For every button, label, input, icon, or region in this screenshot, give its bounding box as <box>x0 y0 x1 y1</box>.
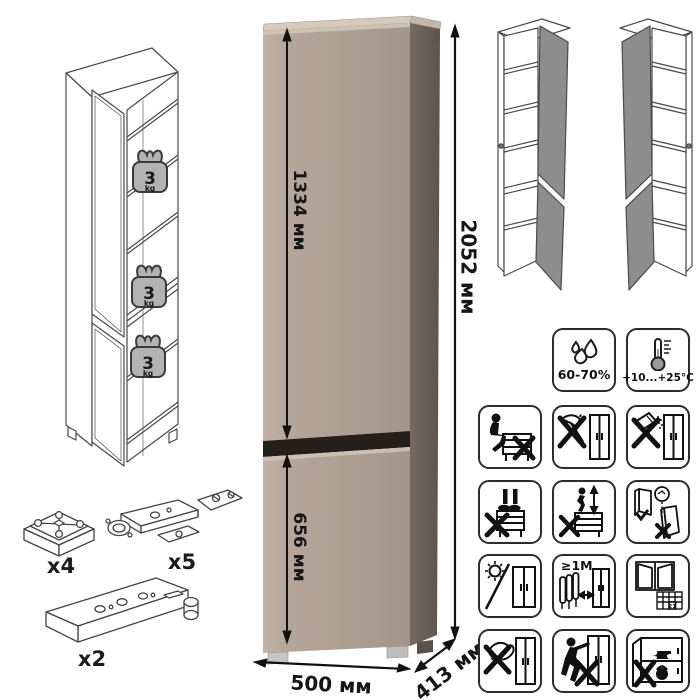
lower-door-open <box>92 323 124 466</box>
icon-no-overloading <box>626 629 690 693</box>
furniture-spec-diagram: { "cabinet": { "upper_door_height": "133… <box>0 0 700 700</box>
cabinet-left-side <box>66 73 92 446</box>
plinth-rail-drawing <box>36 572 211 672</box>
upper-door-open <box>92 90 124 337</box>
svg-text:kg: kg <box>144 299 154 308</box>
no-jumping-icon <box>557 485 611 539</box>
shelf-load-weight-2: 3 kg <box>132 266 166 308</box>
open-cabinet-wireframe: 3 kg 3 kg 3 kg <box>48 42 258 482</box>
dimension-label-lower: 656 мм <box>289 512 309 581</box>
icon-door-adjustment <box>626 480 690 544</box>
shelf-load-weight-1: 3 kg <box>133 151 167 193</box>
no-abrasive-powder-icon <box>631 410 685 464</box>
gray-door-upper <box>538 26 568 199</box>
temperature-value: +10...+25°C <box>622 373 694 384</box>
cabinet-door-right-variant <box>620 19 692 290</box>
icon-ventilate-room: 21 <box>626 554 690 618</box>
icon-no-wet-sponge <box>478 629 542 693</box>
temperature-condition: +10...+25°C <box>626 328 690 392</box>
cabinet-foot <box>417 640 433 654</box>
icon-keep-1m-from-heater: ≥1М <box>552 554 616 618</box>
hinge-quantity: x5 <box>160 550 204 574</box>
cabinet-render-with-dimensions: 1334 мм 656 мм 2052 мм 500 мм 413 мм <box>250 10 480 700</box>
cabinet-door-left-variant <box>498 19 570 290</box>
no-dragging-icon <box>557 634 611 688</box>
rail-quantity: x2 <box>70 647 114 671</box>
icon-no-abrasive-powder <box>626 405 690 469</box>
ventilate-room-icon: 21 <box>631 559 685 613</box>
dimension-total-height <box>451 25 459 639</box>
cabinet-opening <box>127 72 178 462</box>
svg-text:kg: kg <box>145 184 155 193</box>
icon-no-sitting <box>478 405 542 469</box>
icon-no-sharp-tools <box>552 405 616 469</box>
no-direct-sunlight-icon <box>483 559 537 613</box>
icon-no-jumping <box>552 480 616 544</box>
calendar-day: 21 <box>668 604 676 610</box>
dimension-label-height: 2052 мм <box>457 219 481 314</box>
cabinet-side <box>410 23 440 646</box>
humidity-icon <box>567 339 601 367</box>
shelf-load-weight-3: 3 kg <box>131 336 165 378</box>
no-standing-icon <box>483 485 537 539</box>
gray-door-lower <box>536 182 564 290</box>
door-adjustment-icon <box>631 485 685 539</box>
heater-distance-label: ≥1М <box>561 560 593 573</box>
cabinet-foot <box>387 646 408 658</box>
dimension-label-width: 500 мм <box>290 670 373 698</box>
no-sharp-tools-icon <box>557 410 611 464</box>
humidity-value: 60-70% <box>558 369 611 382</box>
icon-no-standing <box>478 480 542 544</box>
humidity-condition: 60-70% <box>552 328 616 392</box>
svg-text:kg: kg <box>143 369 153 378</box>
icon-no-dragging <box>552 629 616 693</box>
no-sitting-icon <box>483 410 537 464</box>
lower-door <box>263 447 410 653</box>
no-overloading-icon <box>631 634 685 688</box>
dimension-label-upper: 1334 мм <box>289 169 309 250</box>
icon-no-direct-sunlight <box>478 554 542 618</box>
no-wet-sponge-icon <box>483 634 537 688</box>
reversible-door-diagram <box>494 14 696 314</box>
thermometer-icon <box>641 337 675 371</box>
upper-door <box>263 23 410 441</box>
